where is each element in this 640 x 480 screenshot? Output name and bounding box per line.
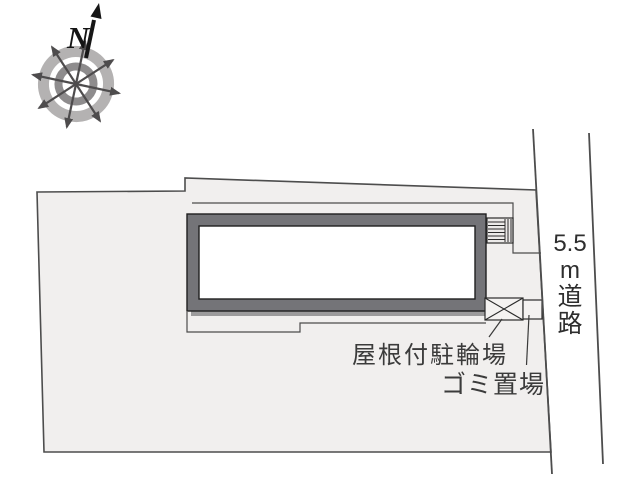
stairs-hatch-icon bbox=[487, 218, 513, 243]
bike-parking-box bbox=[485, 298, 523, 320]
road-width-unit: m bbox=[548, 257, 592, 284]
road-name: 道路 bbox=[557, 284, 584, 338]
road-width-value: 5.5 bbox=[548, 230, 592, 257]
garbage-box bbox=[523, 300, 542, 319]
building-shadow bbox=[191, 311, 487, 316]
north-label: N bbox=[67, 20, 89, 56]
road-width-label: 5.5 m 道路 bbox=[548, 230, 592, 338]
site-plan-drawing bbox=[0, 0, 640, 480]
building-interior bbox=[199, 226, 475, 299]
site-plan-page: N 屋根付駐輪場 ゴミ置場 5.5 m 道路 bbox=[0, 0, 640, 480]
garbage-label: ゴミ置場 bbox=[441, 365, 545, 401]
